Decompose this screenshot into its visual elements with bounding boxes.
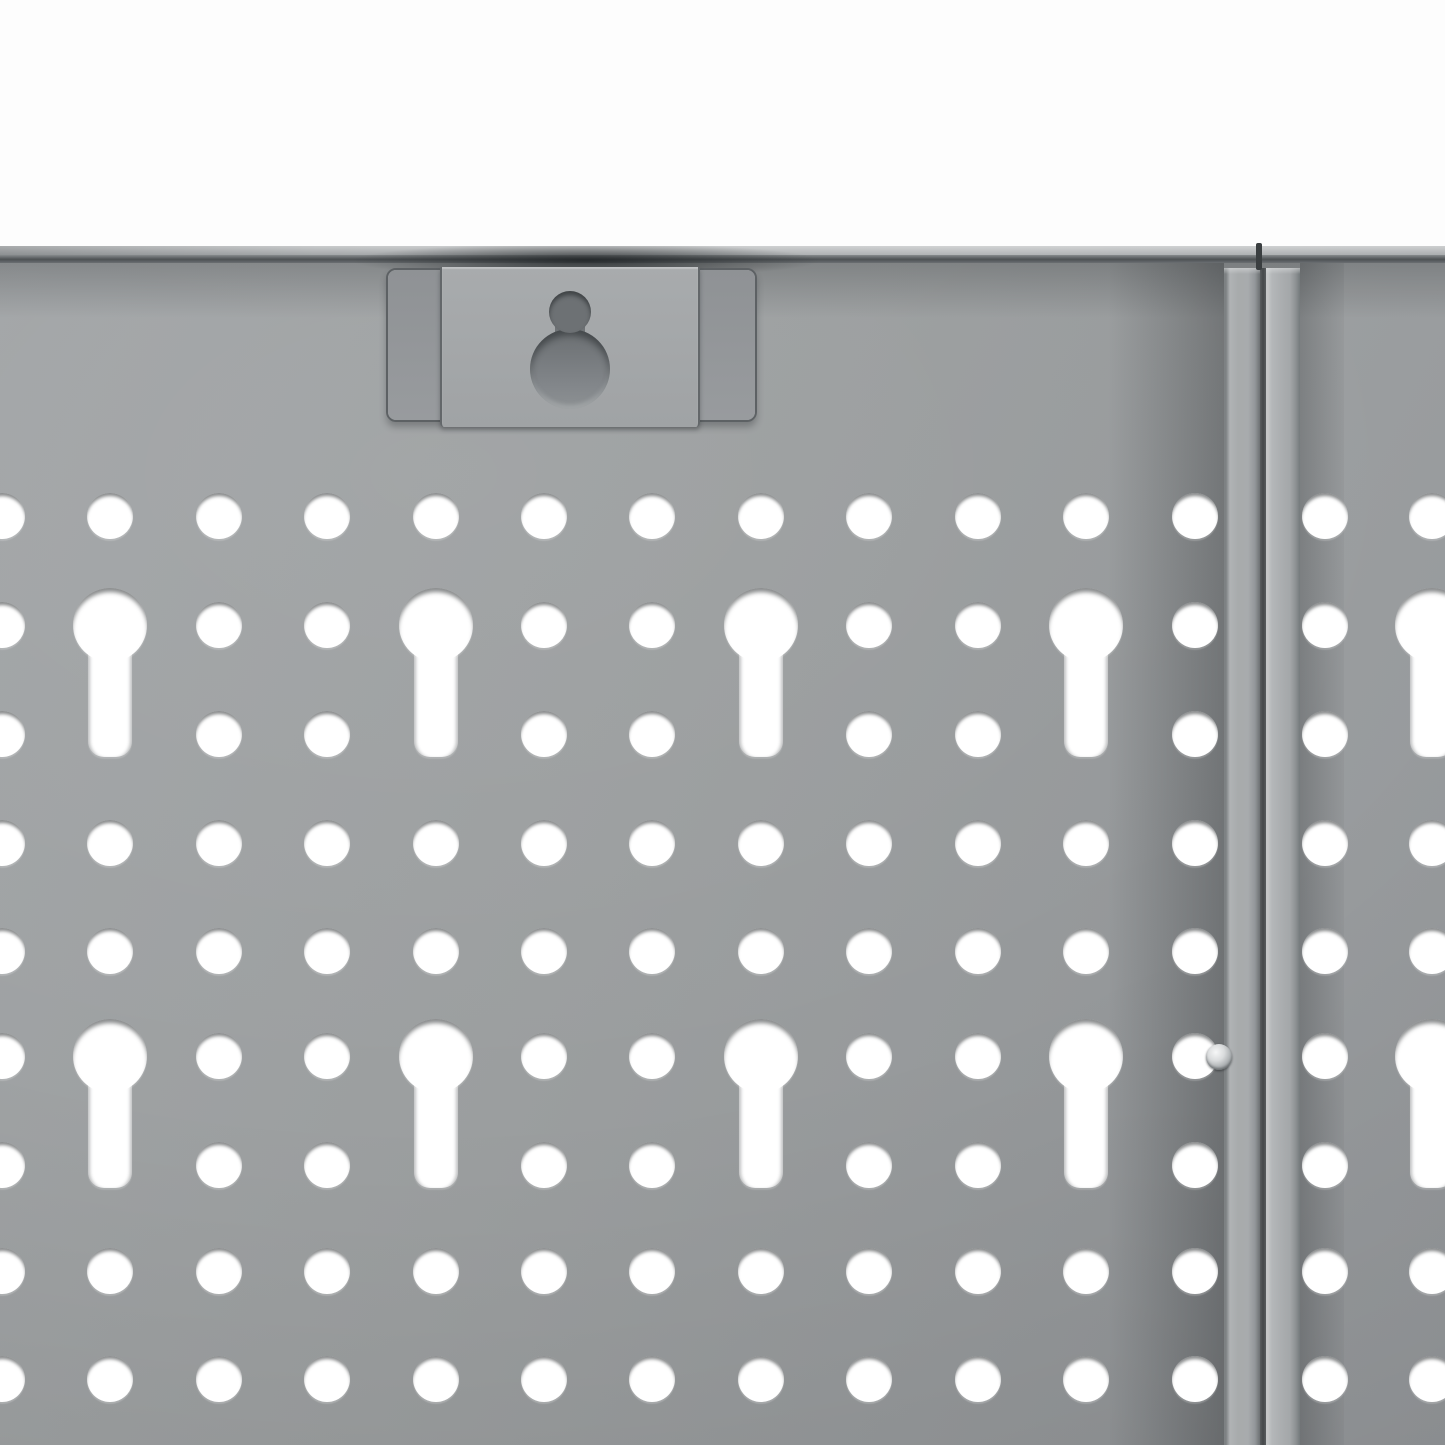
peg-hole — [629, 493, 675, 539]
peg-hole — [521, 820, 567, 866]
peg-hole — [1063, 928, 1109, 974]
peg-hole — [1172, 1142, 1218, 1188]
peg-hole — [846, 820, 892, 866]
seam-screw — [1206, 1044, 1232, 1070]
peg-hole — [196, 1356, 242, 1402]
peg-hole — [955, 928, 1001, 974]
peg-hole — [1063, 820, 1109, 866]
peg-hole — [87, 820, 133, 866]
keyhole-slot-head — [724, 588, 798, 662]
peg-hole — [738, 820, 784, 866]
seam-strip-right — [1266, 268, 1300, 1445]
peg-hole — [955, 1356, 1001, 1402]
peg-hole — [87, 1248, 133, 1294]
keyhole-slot-head — [724, 1019, 798, 1093]
peg-hole — [955, 711, 1001, 757]
seam-top-crack — [1256, 243, 1262, 270]
bracket-wing-left — [388, 270, 440, 420]
peg-hole — [1172, 928, 1218, 974]
peg-hole — [629, 1248, 675, 1294]
peg-hole — [629, 1356, 675, 1402]
peg-hole — [413, 1356, 459, 1402]
seam-strip-left — [1224, 268, 1260, 1445]
keyhole-slot-head — [73, 1019, 147, 1093]
peg-hole — [1302, 602, 1348, 648]
peg-hole — [1302, 1142, 1348, 1188]
peg-hole — [955, 493, 1001, 539]
peg-hole — [1172, 820, 1218, 866]
peg-hole — [304, 493, 350, 539]
bracket-wing-right — [700, 270, 755, 420]
peg-hole — [1302, 1356, 1348, 1402]
peg-hole — [738, 1248, 784, 1294]
peg-hole — [521, 1033, 567, 1079]
peg-hole — [196, 820, 242, 866]
peg-hole — [1302, 1248, 1348, 1294]
peg-hole — [738, 493, 784, 539]
bracket-keyhole-small-circle — [549, 291, 591, 333]
bracket-keyhole-large-circle — [530, 329, 610, 409]
peg-hole — [1063, 1356, 1109, 1402]
peg-hole — [1063, 493, 1109, 539]
peg-hole — [304, 1142, 350, 1188]
peg-hole — [1302, 928, 1348, 974]
peg-hole — [1172, 1356, 1218, 1402]
peg-hole — [629, 820, 675, 866]
peg-hole — [521, 1248, 567, 1294]
peg-hole — [1302, 820, 1348, 866]
peg-hole — [196, 602, 242, 648]
peg-hole — [521, 1142, 567, 1188]
peg-hole — [1063, 1248, 1109, 1294]
peg-hole — [629, 1033, 675, 1079]
peg-hole — [846, 493, 892, 539]
peg-hole — [196, 928, 242, 974]
peg-hole — [196, 1033, 242, 1079]
keyhole-slot-head — [1049, 1019, 1123, 1093]
peg-hole — [955, 1033, 1001, 1079]
keyhole-slot-head — [399, 588, 473, 662]
peg-hole — [87, 1356, 133, 1402]
peg-hole — [955, 820, 1001, 866]
peg-hole — [629, 711, 675, 757]
keyhole-slot-head — [1049, 588, 1123, 662]
keyhole-slot-head — [73, 588, 147, 662]
keyhole-slot-head — [399, 1019, 473, 1093]
peg-hole — [413, 493, 459, 539]
peg-hole — [196, 711, 242, 757]
peg-hole — [304, 1356, 350, 1402]
peg-hole — [413, 928, 459, 974]
peg-hole — [413, 820, 459, 866]
peg-hole — [521, 711, 567, 757]
peg-hole — [1302, 493, 1348, 539]
peg-hole — [1172, 1248, 1218, 1294]
peg-hole — [846, 928, 892, 974]
peg-hole — [629, 928, 675, 974]
peg-hole — [738, 1356, 784, 1402]
peg-hole — [196, 493, 242, 539]
peg-hole — [1172, 711, 1218, 757]
peg-hole — [1172, 602, 1218, 648]
peg-hole — [1172, 493, 1218, 539]
wall-mount-bracket — [386, 268, 757, 422]
peg-hole — [196, 1248, 242, 1294]
peg-hole — [87, 493, 133, 539]
peg-hole — [629, 1142, 675, 1188]
peg-hole — [304, 602, 350, 648]
peg-hole — [413, 1248, 459, 1294]
peg-hole — [955, 1142, 1001, 1188]
peg-hole — [196, 1142, 242, 1188]
peg-hole — [521, 928, 567, 974]
peg-hole — [1302, 711, 1348, 757]
peg-hole — [304, 711, 350, 757]
peg-hole — [629, 602, 675, 648]
peg-hole — [846, 1033, 892, 1079]
peg-hole — [1302, 1033, 1348, 1079]
peg-hole — [846, 1356, 892, 1402]
peg-hole — [304, 1248, 350, 1294]
peg-hole — [521, 602, 567, 648]
peg-hole — [521, 493, 567, 539]
peg-hole — [738, 928, 784, 974]
peg-hole — [304, 820, 350, 866]
peg-hole — [304, 1033, 350, 1079]
peg-hole — [87, 928, 133, 974]
peg-hole — [304, 928, 350, 974]
peg-hole — [846, 602, 892, 648]
peg-hole — [955, 602, 1001, 648]
pegboard-product-photo — [0, 0, 1445, 1445]
peg-hole — [846, 711, 892, 757]
peg-hole — [846, 1142, 892, 1188]
peg-hole — [955, 1248, 1001, 1294]
peg-hole — [846, 1248, 892, 1294]
peg-hole — [521, 1356, 567, 1402]
